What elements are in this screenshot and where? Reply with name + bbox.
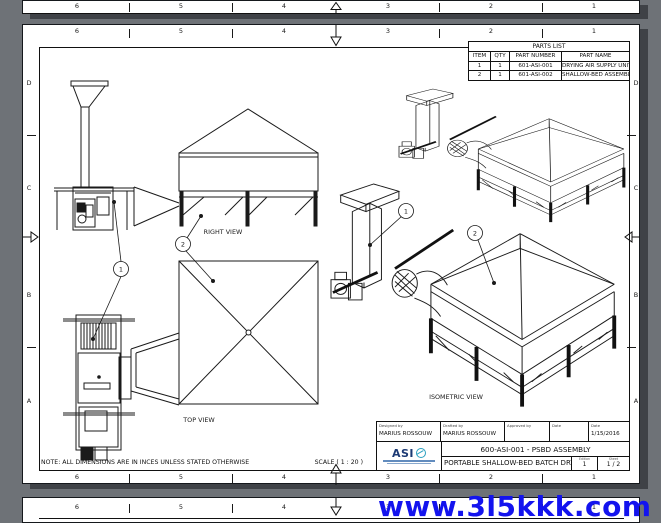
parts-list-row: 2 1 601-ASI-002 SHALLOW-BED ASSEMBLY xyxy=(469,70,629,80)
ruler-tick xyxy=(129,504,130,513)
parts-list-header-row: ITEM QTY PART NUMBER PART NAME xyxy=(469,51,629,61)
previous-page-bottom-edge: 6 5 4 3 2 1 xyxy=(22,0,640,14)
isometric-view-large-drawing xyxy=(331,184,614,407)
row-letter: D xyxy=(24,78,34,88)
dimensions-note: NOTE: ALL DIMENSIONS ARE IN INCES UNLESS… xyxy=(41,459,249,466)
date-label: Date xyxy=(591,423,627,428)
sheet-cell: Sheet 1 / 2 xyxy=(597,457,629,470)
row-letter: B xyxy=(24,290,34,300)
drafted-by-cell: Drafted by MARIUS ROSSOUW xyxy=(440,422,504,441)
center-marker-icon xyxy=(23,231,40,243)
sheet-value: 1 / 2 xyxy=(598,461,629,469)
part-name-cell: DRYING AIR SUPPLY UNIT xyxy=(561,62,629,71)
row-letter: C xyxy=(631,183,641,193)
right-view-drawing xyxy=(54,81,318,230)
part-name-cell: SHALLOW-BED ASSEMBLY xyxy=(561,71,629,80)
ruler-tick xyxy=(542,3,543,12)
designed-by-cell: Designed by MARIUS ROSSOUW xyxy=(377,422,440,441)
designed-by-value: MARIUS ROSSOUW xyxy=(379,431,438,438)
ruler-tick xyxy=(439,474,440,483)
document-scroll-area[interactable]: 6 5 4 3 2 1 6 5 4 3 2 1 6 5 4 xyxy=(0,0,661,523)
ruler-tick xyxy=(129,474,130,483)
column-header: ITEM xyxy=(469,52,490,61)
ruler-number: 2 xyxy=(481,27,501,36)
ruler-number: 2 xyxy=(481,473,501,482)
parts-list-row: 1 1 601-ASI-001 DRYING AIR SUPPLY UNIT xyxy=(469,61,629,71)
ruler-number: 5 xyxy=(171,503,191,512)
top-view-label: TOP VIEW xyxy=(154,416,244,424)
row-letter: B xyxy=(631,290,641,300)
ruler-tick xyxy=(129,3,130,12)
ruler-tick xyxy=(232,474,233,483)
ruler-tick xyxy=(232,29,233,38)
ruler-tick xyxy=(542,474,543,483)
item-cell: 1 xyxy=(469,62,490,71)
ruler-tick xyxy=(27,347,36,348)
ruler-tick xyxy=(439,29,440,38)
logo-tagline-bar xyxy=(387,463,431,464)
drawing-sheet-page1: 6 5 4 3 2 1 6 5 4 3 2 1 D C B A xyxy=(22,24,640,484)
qty-cell: 1 xyxy=(490,71,509,80)
balloon-2-label: 2 xyxy=(473,230,477,238)
approved-by-label: Approved by xyxy=(507,423,547,428)
drafted-by-label: Drafted by xyxy=(443,423,502,428)
approved-by-cell: Approved by xyxy=(504,422,549,441)
row-letter: C xyxy=(24,183,34,193)
row-letter: A xyxy=(631,396,641,406)
ruler-number: 4 xyxy=(274,503,294,512)
ruler-number: 4 xyxy=(274,473,294,482)
viewer-background: { "viewer": { "watermark": "www.3l5kkk.c… xyxy=(0,0,661,523)
row-letter: A xyxy=(24,396,34,406)
isometric-view-small-drawing xyxy=(399,89,624,222)
ruler-number: 3 xyxy=(378,473,398,482)
right-view-label: RIGHT VIEW xyxy=(178,228,268,236)
ruler-number: 6 xyxy=(67,27,87,36)
ruler-number: 6 xyxy=(67,2,87,11)
ruler-number: 4 xyxy=(274,27,294,36)
balloon-2-label: 2 xyxy=(181,241,185,249)
balloon-callouts: 1 2 1 2 xyxy=(91,200,495,340)
qty-cell: 1 xyxy=(490,62,509,71)
scale-label: SCALE ( 1 : 20 ) xyxy=(263,459,363,466)
ruler-tick xyxy=(232,504,233,513)
drawing-views-canvas: 1 2 1 2 xyxy=(39,47,630,471)
designed-by-label: Designed by xyxy=(379,423,438,428)
item-cell: 2 xyxy=(469,71,490,80)
title-block: Designed by MARIUS ROSSOUW Drafted by MA… xyxy=(376,421,630,471)
date-cell: Date 1/15/2016 xyxy=(588,422,629,441)
top-view-drawing xyxy=(63,261,318,460)
ruler-number: 6 xyxy=(67,473,87,482)
ruler-tick xyxy=(439,3,440,12)
row-letter: D xyxy=(631,78,641,88)
center-marker-icon xyxy=(329,498,343,517)
parts-list-table: PARTS LIST ITEM QTY PART NUMBER PART NAM… xyxy=(468,41,630,81)
parts-list-title: PARTS LIST xyxy=(469,42,629,51)
ruler-number: 3 xyxy=(378,2,398,11)
balloon-1-label: 1 xyxy=(119,266,123,274)
part-number-cell: 601-ASI-002 xyxy=(509,71,561,80)
ruler-number: 5 xyxy=(171,2,191,11)
ruler-number: 5 xyxy=(171,27,191,36)
ruler-number: 5 xyxy=(171,473,191,482)
ruler-number: 1 xyxy=(584,473,604,482)
column-header: PART NAME xyxy=(561,52,629,61)
logo-tagline-bar xyxy=(383,460,435,462)
center-marker-icon xyxy=(329,1,343,14)
ruler-tick xyxy=(542,29,543,38)
ruler-number: 1 xyxy=(584,27,604,36)
drafted-by-value: MARIUS ROSSOUW xyxy=(443,431,502,438)
ruler-tick xyxy=(129,29,130,38)
column-header: PART NUMBER xyxy=(509,52,561,61)
part-number-cell: 601-ASI-001 xyxy=(509,62,561,71)
balloon-1-label: 1 xyxy=(404,208,408,216)
ruler-number: 3 xyxy=(378,27,398,36)
ruler-tick xyxy=(232,3,233,12)
edition-cell: Edition 1 xyxy=(571,457,597,470)
company-logo: ASI xyxy=(377,442,442,470)
ruler-number: 4 xyxy=(274,2,294,11)
drawing-title: PORTABLE SHALLOW-BED BATCH DRYER xyxy=(442,457,571,470)
logo-text: ASI xyxy=(392,448,414,459)
date-label: Date xyxy=(552,423,586,428)
column-header: QTY xyxy=(490,52,509,61)
ruler-number: 1 xyxy=(584,2,604,11)
center-marker-icon xyxy=(329,25,343,47)
ruler-tick xyxy=(27,135,36,136)
ruler-number: 2 xyxy=(481,2,501,11)
edition-value: 1 xyxy=(572,461,597,469)
isometric-view-label: ISOMETRIC VIEW xyxy=(411,393,501,401)
watermark-text: www.3l5kkk.com xyxy=(378,490,652,523)
globe-icon xyxy=(416,448,426,458)
date-cell: Date xyxy=(549,422,588,441)
drawing-number: 600-ASI-001 - PSBD ASSEMBLY xyxy=(442,442,629,457)
date-value: 1/15/2016 xyxy=(591,431,627,438)
ruler-number: 6 xyxy=(67,503,87,512)
